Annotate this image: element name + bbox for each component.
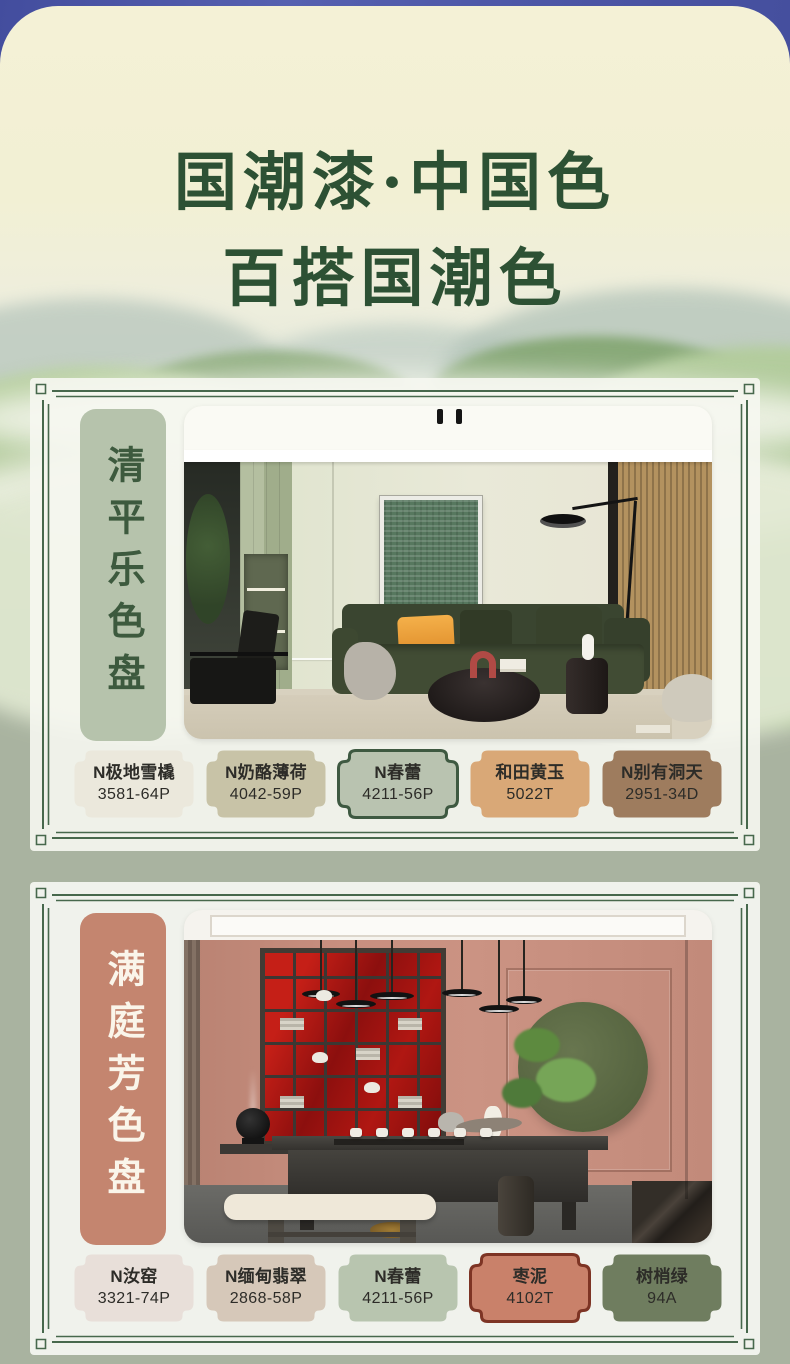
pendant-stem xyxy=(391,940,393,992)
red-arch-decor xyxy=(470,651,496,678)
color-swatch: N极地雪橇3581-64P xyxy=(73,749,195,819)
shelf-teapot xyxy=(364,1082,380,1093)
floor-books xyxy=(636,725,670,733)
shelf-teapot xyxy=(316,990,332,1001)
card-label-text: 满庭芳色盘 xyxy=(104,949,142,1209)
swatch-code: 2951-34D xyxy=(625,785,698,806)
swatch-name: 枣泥 xyxy=(513,1266,548,1289)
title-line-2: 百搭国潮色 xyxy=(0,230,790,326)
color-swatch: N别有洞天2951-34D xyxy=(601,749,723,819)
title-line-1: 国潮漆·中国色 xyxy=(0,134,790,230)
tea-cup xyxy=(428,1128,440,1137)
table-leg xyxy=(562,1202,576,1230)
plant-foliage xyxy=(536,1058,596,1102)
tea-cup xyxy=(350,1128,362,1137)
armchair-seat xyxy=(190,658,276,704)
swatch-name: N极地雪橇 xyxy=(93,762,175,785)
swatch-name: N汝窑 xyxy=(110,1266,157,1289)
swatch-name: 和田黄玉 xyxy=(495,762,564,785)
pendant-light xyxy=(506,996,542,1004)
swatch-code: 3581-64P xyxy=(98,785,171,806)
card-label-pill: 清平乐色盘 xyxy=(80,409,166,741)
shelf-books xyxy=(280,1018,304,1030)
red-display-shelf xyxy=(260,948,446,1146)
shelf-books xyxy=(398,1018,422,1030)
astronaut-figurine xyxy=(582,634,594,660)
swatch-code: 5022T xyxy=(506,785,553,806)
tea-cup xyxy=(480,1128,492,1137)
shelf-books xyxy=(356,1048,380,1060)
bench-stretcher xyxy=(268,1232,416,1237)
shelf-books xyxy=(398,1096,422,1108)
plant-foliage xyxy=(502,1078,542,1108)
steam xyxy=(250,1068,256,1110)
swatch-code: 4211-56P xyxy=(362,785,433,806)
pendant-light xyxy=(336,1000,376,1008)
bench-leg xyxy=(268,1218,284,1243)
pouf xyxy=(662,674,712,722)
card-label-text: 清平乐色盘 xyxy=(104,445,142,705)
swatch-code: 2868-58P xyxy=(230,1289,303,1310)
side-table xyxy=(566,658,608,714)
pendant-light xyxy=(442,989,482,997)
curtain xyxy=(184,940,200,1223)
tea-cup xyxy=(454,1128,466,1137)
swatch-code: 4102T xyxy=(506,1289,553,1310)
floor-lamp-shade xyxy=(540,514,586,528)
pendant-stem xyxy=(461,940,463,989)
ceiling-spotlight xyxy=(456,409,462,424)
shelf-bowl xyxy=(312,1052,328,1063)
color-swatch: N缅甸翡翠2868-58P xyxy=(205,1253,327,1323)
color-swatch-featured: 枣泥4102T xyxy=(469,1253,591,1323)
table-runner xyxy=(334,1139,464,1145)
color-swatch: N汝窑3321-74P xyxy=(73,1253,195,1323)
plant-foliage xyxy=(514,1028,560,1062)
pendant-stem xyxy=(355,940,357,1000)
pendant-stem xyxy=(320,940,322,990)
marble-floor xyxy=(632,1181,712,1243)
pendant-stem xyxy=(523,940,525,996)
poster-title: 国潮漆·中国色 百搭国潮色 xyxy=(0,134,790,326)
pendant-light xyxy=(479,1005,519,1013)
swatch-name: N春蕾 xyxy=(374,762,421,785)
swatch-code: 4042-59P xyxy=(230,785,303,806)
tea-room-photo xyxy=(184,910,712,1243)
promo-poster-page: 国潮漆·中国色 百搭国潮色 清平乐色盘 xyxy=(0,0,790,1364)
iron-kettle xyxy=(236,1108,270,1140)
pendant-light xyxy=(370,992,414,1000)
palette-card-mantingfang: 满庭芳色盘 xyxy=(30,882,760,1355)
color-swatch: N奶酪薄荷4042-59P xyxy=(205,749,327,819)
color-swatch: N春蕾4211-56P xyxy=(337,1253,459,1323)
swatch-name: 树梢绿 xyxy=(636,1266,688,1289)
swatch-code: 94A xyxy=(647,1289,677,1310)
color-swatch-row: N极地雪橇3581-64P N奶酪薄荷4042-59P N春蕾4211-56P … xyxy=(73,749,723,819)
color-swatch: 和田黄玉5022T xyxy=(469,749,591,819)
swatch-code: 3321-74P xyxy=(98,1289,171,1310)
bench-leg xyxy=(400,1218,416,1243)
tea-cup xyxy=(376,1128,388,1137)
ceiling xyxy=(184,406,712,450)
color-swatch-featured: N春蕾4211-56P xyxy=(337,749,459,819)
living-room-photo xyxy=(184,406,712,739)
crown-molding xyxy=(184,450,712,462)
ceiling-recess xyxy=(210,915,686,937)
swatch-name: N别有洞天 xyxy=(621,762,703,785)
palette-card-qingpingle: 清平乐色盘 xyxy=(30,378,760,851)
swatch-code: 4211-56P xyxy=(362,1289,433,1310)
swatch-name: N春蕾 xyxy=(374,1266,421,1289)
content-panel: 国潮漆·中国色 百搭国潮色 清平乐色盘 xyxy=(0,6,790,1364)
card-label-pill: 满庭芳色盘 xyxy=(80,913,166,1245)
table-books xyxy=(500,659,526,669)
wood-stool xyxy=(498,1176,534,1236)
cream-bench xyxy=(224,1194,436,1220)
pendant-stem xyxy=(498,940,500,1005)
ceiling-spotlight xyxy=(437,409,443,424)
plant xyxy=(186,494,230,624)
shelf-books xyxy=(280,1096,304,1108)
color-swatch: 树梢绿94A xyxy=(601,1253,723,1323)
tea-cup xyxy=(402,1128,414,1137)
swatch-name: N奶酪薄荷 xyxy=(225,762,307,785)
swatch-name: N缅甸翡翠 xyxy=(225,1266,307,1289)
wall-edge xyxy=(685,940,688,1199)
armchair-rail xyxy=(190,652,288,656)
color-swatch-row: N汝窑3321-74P N缅甸翡翠2868-58P N春蕾4211-56P 枣泥… xyxy=(73,1253,723,1323)
